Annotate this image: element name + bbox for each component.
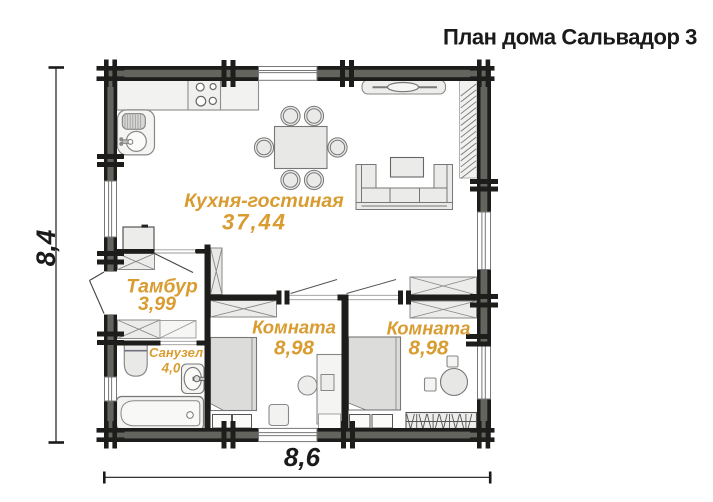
svg-text:8,6: 8,6 [284,442,321,472]
svg-text:3,99: 3,99 [138,293,176,315]
svg-text:8,98: 8,98 [274,337,314,360]
svg-text:37,44: 37,44 [222,210,287,235]
svg-text:8,4: 8,4 [31,229,61,266]
svg-text:Комната: Комната [252,317,336,338]
svg-text:Санузел: Санузел [149,345,203,360]
svg-text:4,0: 4,0 [161,361,181,376]
svg-text:Комната: Комната [387,318,471,339]
svg-text:План дома Сальвадор 3: План дома Сальвадор 3 [443,25,697,50]
svg-text:8,98: 8,98 [409,337,449,360]
